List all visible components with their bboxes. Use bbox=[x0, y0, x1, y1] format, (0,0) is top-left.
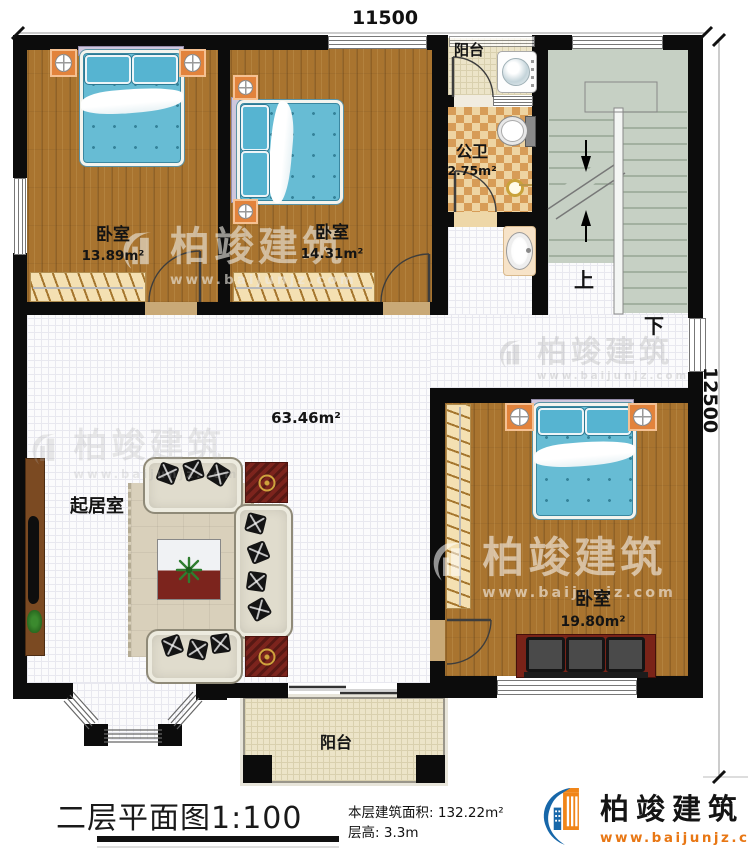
room-name: 阳台 bbox=[300, 734, 372, 752]
plan-title: 二层平面图1:100 bbox=[56, 793, 302, 837]
room-area: 14.31m² bbox=[301, 246, 364, 262]
stairs-up-label: 上 bbox=[571, 269, 597, 292]
title-underline-shadow bbox=[97, 846, 339, 848]
stairs-down-text: 下 bbox=[644, 314, 664, 338]
room-name: 阳台 bbox=[440, 42, 498, 59]
dimension-top: 11500 bbox=[345, 7, 425, 29]
plan-title-text: 二层平面图 bbox=[56, 801, 211, 836]
room-name: 卧室 bbox=[543, 590, 643, 611]
brand-logo: 柏竣建筑 www.baijunjz.com bbox=[536, 785, 750, 847]
floor-height-line: 层高: 3.3m bbox=[348, 823, 504, 843]
dimension-right: 12500 bbox=[699, 360, 721, 440]
room-label-bathroom: 公卫 2.75m² bbox=[436, 143, 508, 180]
room-area: 2.75m² bbox=[447, 163, 496, 178]
room-label-living: 起居室 bbox=[56, 497, 138, 518]
plan-linework bbox=[0, 0, 750, 859]
room-label-bedroom1: 卧室 13.89m² bbox=[63, 226, 163, 265]
room-label-bedroom2: 卧室 14.31m² bbox=[282, 224, 382, 263]
room-area: 63.46m² bbox=[271, 409, 341, 427]
room-name: 起居室 bbox=[56, 497, 138, 518]
brand-name: 柏竣建筑 bbox=[600, 786, 750, 828]
living-area-label: 63.46m² bbox=[263, 410, 349, 427]
floor-info: 本层建筑面积: 132.22m² 层高: 3.3m bbox=[348, 803, 504, 844]
plan-scale: 1:100 bbox=[211, 801, 302, 836]
baijun-logo-icon bbox=[536, 785, 592, 847]
room-name: 卧室 bbox=[282, 224, 382, 244]
room-label-bedroom3: 卧室 19.80m² bbox=[543, 590, 643, 631]
floor-plan: 柏竣建筑www.baijunjz.com 柏竣建筑www.baijunjz.co… bbox=[0, 0, 750, 859]
room-label-balcony-top: 阳台 bbox=[440, 42, 498, 59]
floor-height-value: 3.3m bbox=[384, 825, 419, 841]
stairs-down-label: 下 bbox=[641, 315, 667, 338]
floor-area-line: 本层建筑面积: 132.22m² bbox=[348, 803, 504, 823]
title-underline bbox=[97, 836, 339, 842]
stairs-up-text: 上 bbox=[574, 268, 594, 292]
floor-area-label: 本层建筑面积: bbox=[348, 805, 434, 821]
floor-area-value: 132.22m² bbox=[438, 805, 504, 821]
room-area: 13.89m² bbox=[82, 248, 145, 264]
brand-website: www.baijunjz.com bbox=[600, 830, 750, 846]
room-name: 公卫 bbox=[436, 143, 508, 161]
floor-height-label: 层高: bbox=[348, 825, 380, 841]
room-label-balcony-bottom: 阳台 bbox=[300, 734, 372, 752]
dimension-right-value: 12500 bbox=[699, 367, 721, 433]
room-name: 卧室 bbox=[63, 226, 163, 246]
dimension-top-value: 11500 bbox=[352, 7, 418, 29]
room-area: 19.80m² bbox=[560, 614, 625, 630]
